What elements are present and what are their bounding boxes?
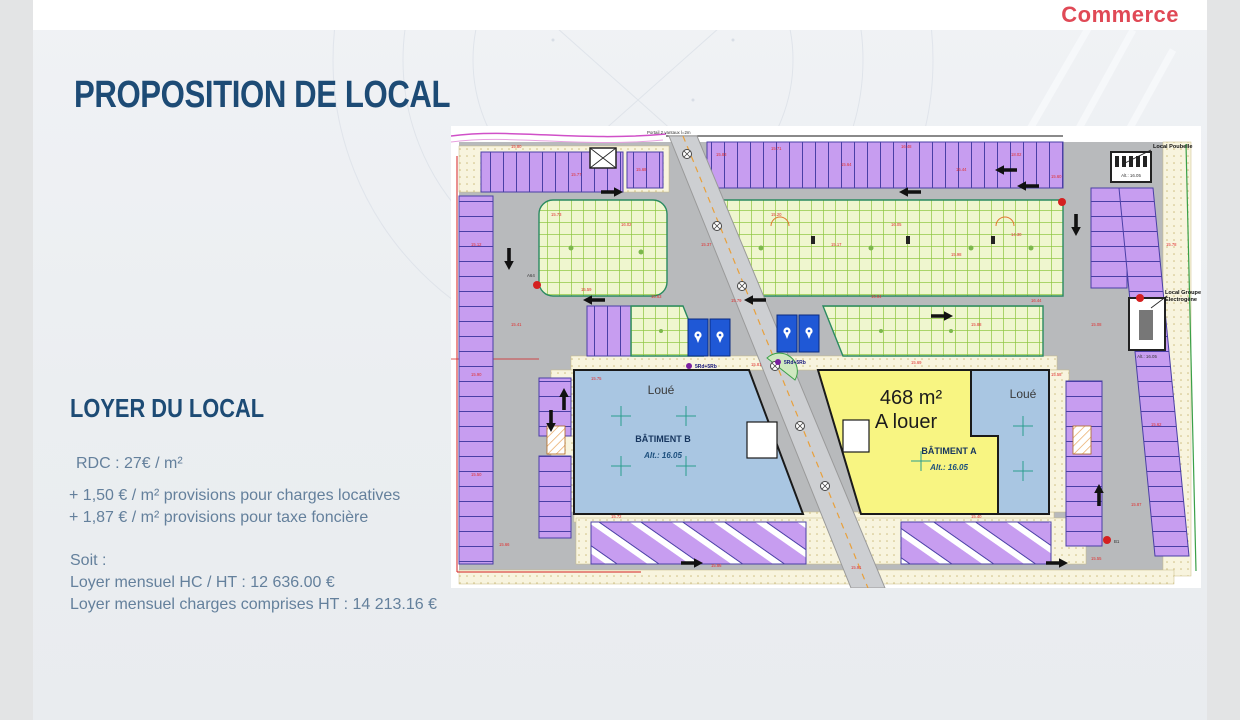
rent-summary-line-1: Loyer mensuel HC / HT : 12 636.00 € (70, 574, 335, 592)
rent-charge-line-2: + 1,87 € / m² provisions pour taxe fonci… (69, 509, 368, 527)
svg-text:15.55: 15.55 (1091, 556, 1102, 561)
rent-rate-line: RDC : 27€ / m² (76, 455, 183, 473)
svg-text:15.40: 15.40 (971, 514, 982, 519)
local-electrogene-altitude: Alt.: 16.05 (1137, 354, 1157, 359)
top-white-strip: Commerce (33, 0, 1207, 30)
site-plan: Loué BÂTIMENT B Alt.: 16.05 468 m² A l (451, 126, 1201, 588)
svg-text:15.64: 15.64 (841, 162, 852, 167)
svg-text:15.88: 15.88 (971, 322, 982, 327)
logo-text: Commerce (1061, 2, 1179, 28)
bike-count-label-2: 5Rd+5Rb (784, 360, 806, 366)
rent-section-heading: LOYER DU LOCAL (70, 393, 264, 424)
local-poubelle-label: Local Poubelle (1153, 144, 1192, 150)
svg-text:15.87: 15.87 (1131, 502, 1142, 507)
presentation-slide: Commerce PROPOSITION DE LOCAL LOYER DU L… (33, 0, 1207, 720)
page-title: PROPOSITION DE LOCAL (74, 74, 450, 117)
svg-text:15.75: 15.75 (591, 376, 602, 381)
svg-text:15.50: 15.50 (471, 472, 482, 477)
svg-text:15.63: 15.63 (651, 294, 662, 299)
local-electrogene-label-1: Local Groupe (1165, 290, 1201, 296)
svg-text:15.81: 15.81 (751, 362, 762, 367)
svg-text:15.68: 15.68 (636, 167, 647, 172)
svg-text:15.73: 15.73 (551, 212, 562, 217)
building-a-status-label: A louer (875, 411, 938, 433)
svg-text:15.62: 15.62 (1151, 422, 1162, 427)
building-a-altitude: Alt.: 16.05 (929, 463, 968, 472)
building-a-area-label: 468 m² (880, 387, 943, 409)
svg-text:16.02: 16.02 (621, 222, 632, 227)
svg-text:15.60: 15.60 (1051, 174, 1062, 179)
site-plan-drawing: Loué BÂTIMENT B Alt.: 16.05 468 m² A l (451, 126, 1201, 588)
svg-text:15.08: 15.08 (1091, 322, 1102, 327)
svg-text:15.83: 15.83 (716, 152, 727, 157)
left-gray-margin (0, 0, 33, 720)
transformer-building (590, 148, 616, 168)
rent-charge-line-1: + 1,50 € / m² provisions pour charges lo… (69, 487, 400, 505)
svg-text:15.84: 15.84 (871, 294, 882, 299)
svg-text:15.72: 15.72 (611, 514, 622, 519)
marker-b1-label: B1 (1114, 539, 1120, 544)
svg-text:15.58: 15.58 (1051, 372, 1062, 377)
svg-text:15.41: 15.41 (511, 322, 522, 327)
building-a-right-status: Loué (1010, 387, 1037, 401)
svg-text:15.90: 15.90 (471, 372, 482, 377)
svg-text:15.91: 15.91 (851, 565, 862, 570)
svg-text:15.69: 15.69 (911, 360, 922, 365)
building-b-status: Loué (648, 383, 675, 397)
right-gray-margin (1207, 0, 1240, 720)
svg-text:16.44: 16.44 (1031, 298, 1042, 303)
svg-text:18.02: 18.02 (1011, 152, 1022, 157)
building-b-name: BÂTIMENT B (635, 433, 691, 444)
svg-text:16.48: 16.48 (901, 144, 912, 149)
svg-text:15.66: 15.66 (499, 542, 510, 547)
svg-text:15.71: 15.71 (771, 146, 782, 151)
svg-text:15.80: 15.80 (511, 144, 522, 149)
company-logo: Commerce (1055, 0, 1185, 30)
rent-summary-line-2: Loyer mensuel charges comprises HT : 14 … (70, 596, 437, 614)
slide-stage: Commerce PROPOSITION DE LOCAL LOYER DU L… (0, 0, 1240, 720)
svg-text:15.78: 15.78 (1166, 242, 1177, 247)
marker-a64-label: A64 (527, 273, 535, 278)
svg-text:15.59: 15.59 (581, 287, 592, 292)
svg-text:15.17: 15.17 (831, 242, 842, 247)
svg-text:15.86: 15.86 (711, 563, 722, 568)
portal-label: Portail 2 vantaux l=2m (647, 130, 691, 135)
building-b-altitude: Alt.: 16.05 (643, 451, 682, 460)
local-poubelle-altitude: Alt.: 16.05 (1121, 173, 1141, 178)
svg-text:15.79: 15.79 (731, 298, 742, 303)
bike-count-label-1: 5Rd+5Rb (695, 364, 717, 370)
svg-text:15.20: 15.20 (771, 212, 782, 217)
local-electrogene-label-2: Electrogène (1165, 297, 1197, 303)
svg-text:15.12: 15.12 (471, 242, 482, 247)
rent-soit-label: Soit : (70, 552, 106, 570)
svg-text:15.44: 15.44 (956, 167, 967, 172)
svg-text:16.05: 16.05 (891, 222, 902, 227)
svg-text:15.98: 15.98 (951, 252, 962, 257)
svg-text:14.30: 14.30 (1011, 232, 1022, 237)
svg-text:15.37: 15.37 (701, 242, 712, 247)
svg-text:15.77: 15.77 (571, 172, 582, 177)
building-a-name: BÂTIMENT A (921, 445, 977, 456)
